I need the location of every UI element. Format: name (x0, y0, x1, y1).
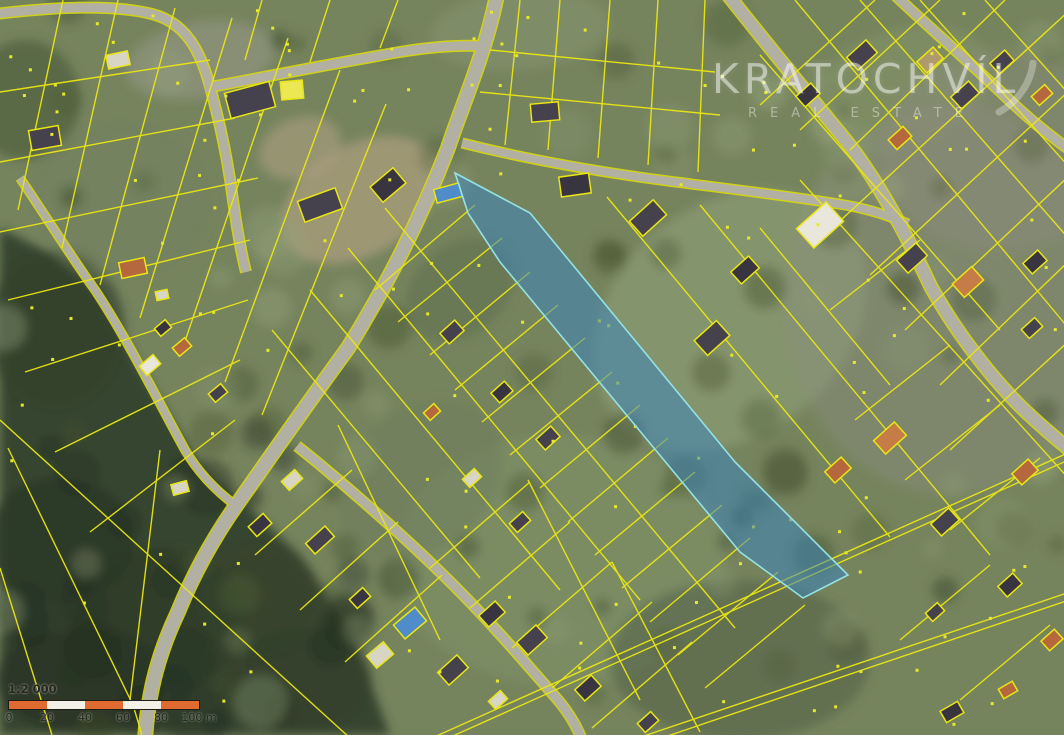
building-footprint (530, 102, 559, 122)
scale-tick-labels: 020406080100 m (8, 711, 198, 725)
map-viewport[interactable]: KRATOCHVÍL REAL ESTATE 1:2 000 020406080… (0, 0, 1064, 735)
scale-bar-segments (8, 700, 200, 710)
scale-segment (9, 701, 47, 709)
scale-tick-label: 60 (116, 711, 130, 724)
scale-tick-label: 80 (154, 711, 168, 724)
scale-tick-label: 20 (40, 711, 54, 724)
building-footprint (280, 80, 303, 100)
map-canvas[interactable] (0, 0, 1064, 735)
scale-tick-label: 0 (6, 711, 13, 724)
scale-segment (123, 701, 161, 709)
scale-ratio-label: 1:2 000 (8, 682, 238, 697)
scale-bar: 1:2 000 020406080100 m (8, 682, 238, 725)
building-footprint (559, 173, 591, 197)
scale-segment (161, 701, 199, 709)
scale-tick-label: 100 m (181, 711, 216, 724)
building-footprint (155, 289, 169, 300)
scale-segment (85, 701, 123, 709)
building-footprint (28, 126, 61, 151)
scale-tick-label: 40 (78, 711, 92, 724)
scale-segment (47, 701, 85, 709)
